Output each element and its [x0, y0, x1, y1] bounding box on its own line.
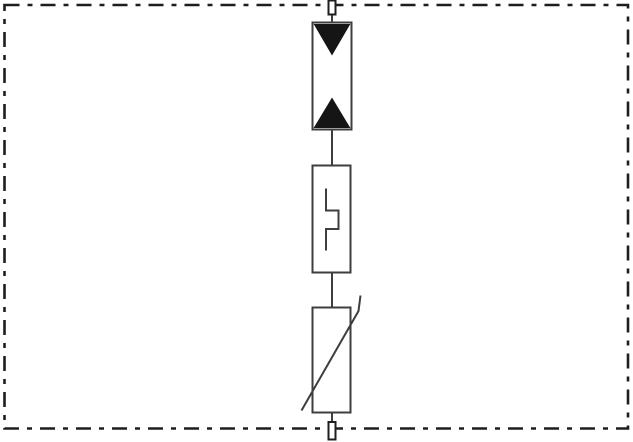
- spark-gap-body: [313, 166, 351, 273]
- switching-spark-gap-symbol: [313, 166, 351, 273]
- top-terminal: [329, 1, 336, 15]
- bottom-terminal: [329, 422, 336, 440]
- circuit-diagram: [0, 0, 633, 442]
- bidirectional-suppressor-diode-symbol: [313, 23, 352, 130]
- varistor-symbol: [302, 296, 361, 413]
